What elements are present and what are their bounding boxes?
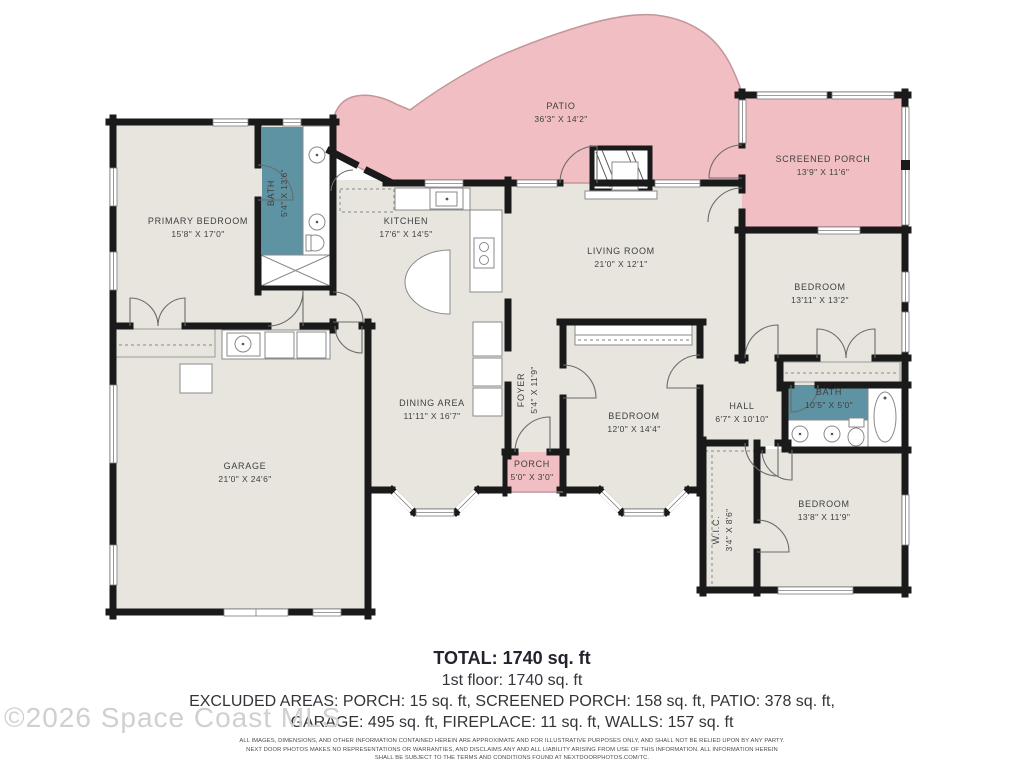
screened-porch-area [742, 92, 908, 234]
disclaimer: ALL IMAGES, DIMENSIONS, AND OTHER INFORM… [0, 737, 1024, 763]
first-floor-area-text: 1st floor: 1740 sq. ft [0, 672, 1024, 690]
floorplan-page: PRIMARY BEDROOM 15'8" X 17'0" BATH 5'4" … [0, 0, 1024, 768]
patio-area [332, 15, 744, 183]
front-porch-area [505, 452, 563, 493]
total-area-text: TOTAL: 1740 sq. ft [0, 648, 1024, 669]
mls-watermark: ©2026 Space Coast MLS [4, 702, 341, 734]
